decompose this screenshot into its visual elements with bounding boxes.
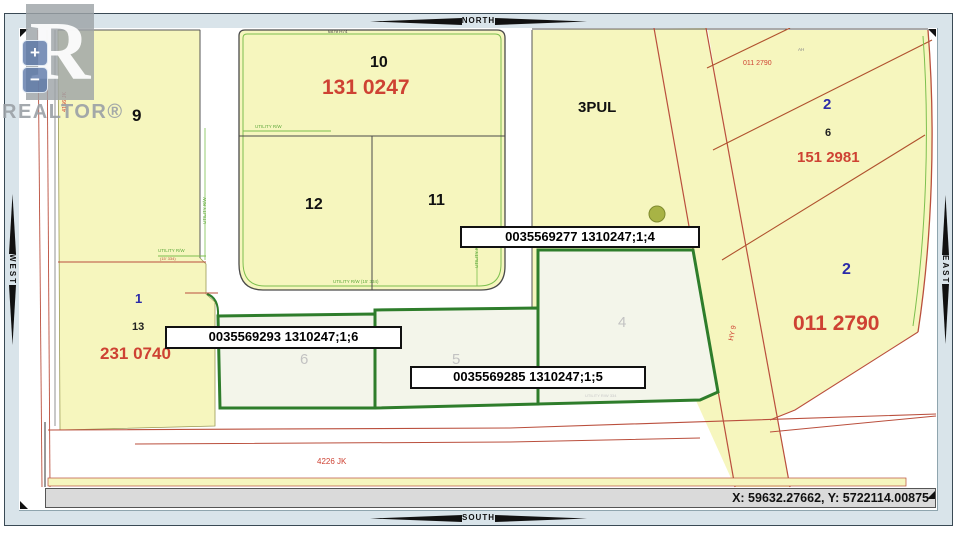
pan-arrow-top-left-icon[interactable]	[20, 29, 28, 37]
lot-12-label: 12	[305, 197, 323, 213]
annotation-ah: AH	[798, 48, 804, 53]
zoom-in-button[interactable]: +	[22, 40, 48, 66]
compass-west-label: WEST	[8, 254, 16, 285]
parcel-callout-1310247-1-6: 0035569293 1310247;1;6	[165, 326, 402, 349]
utility-row-label: UTILITY R/W (15' 334)	[333, 280, 379, 285]
sublot-6-label: 6	[300, 352, 308, 367]
east-arrow-down-icon	[941, 284, 950, 344]
east-arrow-up-icon	[941, 195, 950, 255]
compass-bar-west[interactable]: WEST	[5, 28, 20, 511]
south-arrow-right-icon	[495, 514, 587, 523]
road-4226jk-label: 4226 JK	[317, 458, 346, 466]
compass-east-label: EAST	[941, 255, 949, 284]
south-arrow-left-icon	[370, 514, 462, 523]
compass-bar-south[interactable]: SOUTH	[5, 510, 952, 525]
status-bar: X: 59632.27662, Y: 5722114.00875	[45, 488, 936, 508]
lot-11-label: 11	[428, 193, 445, 209]
parcel-9-1-region[interactable]	[58, 30, 215, 430]
compass-south-label: SOUTH	[462, 514, 495, 522]
pan-arrow-top-right-icon[interactable]	[928, 29, 936, 37]
map-viewer: NORTH SOUTH WEST EAST	[0, 0, 960, 540]
survey-monument-dot[interactable]	[649, 206, 665, 222]
utility-dim-label: (15' 334)	[160, 257, 176, 261]
viewer-frame: NORTH SOUTH WEST EAST	[4, 13, 953, 526]
utility-row-label: UTILITY R/W	[255, 125, 282, 130]
utility-row-faint-label: UTILITY R/W 334	[585, 394, 617, 398]
plan-231-0740-label: 231 0740	[100, 345, 171, 362]
west-arrow-up-icon	[8, 194, 17, 254]
compass-bar-north[interactable]: NORTH	[5, 14, 952, 29]
parcel-callout-1310247-1-4: 0035569277 1310247;1;4	[460, 226, 700, 248]
pan-arrow-bottom-left-icon[interactable]	[20, 501, 28, 509]
plan-011-2790-small-label: 011 2790	[743, 60, 772, 67]
plan-011-2790-label: 011 2790	[793, 313, 879, 334]
utility-row-label-vertical: UTILITY R/W	[203, 197, 208, 224]
west-arrow-down-icon	[8, 285, 17, 345]
annotation-6879: 6879 H74	[328, 30, 348, 35]
lot-13-label: 13	[132, 322, 144, 333]
north-arrow-right-icon	[495, 17, 587, 26]
road-lines-left	[38, 30, 55, 487]
map-canvas[interactable]: 9 1 13 231 0740 10 131 0247 12 11 3PUL 6…	[19, 28, 937, 510]
sublot-4-label: 4	[618, 315, 626, 330]
plan-131-0247-label: 131 0247	[322, 77, 410, 98]
compass-north-label: NORTH	[462, 17, 495, 25]
lot-6-right-label: 6	[825, 128, 831, 139]
block-1-label: 1	[135, 292, 142, 305]
north-arrow-left-icon	[370, 17, 462, 26]
sublot-5-label: 5	[452, 352, 460, 367]
compass-bar-east[interactable]: EAST	[937, 28, 952, 511]
zoom-out-button[interactable]: −	[22, 67, 48, 93]
lot-3pul-label: 3PUL	[578, 100, 616, 115]
road-4156jk-label: 4156 JK	[63, 92, 69, 112]
pan-arrow-bottom-right-icon[interactable]	[927, 491, 935, 499]
plan-151-2981-label: 151 2981	[797, 150, 860, 165]
block-2-lower-label: 2	[842, 262, 851, 278]
block-2-upper-label: 2	[823, 97, 831, 112]
parcel-callout-1310247-1-5: 0035569285 1310247;1;5	[410, 366, 646, 389]
cursor-coordinates: X: 59632.27662, Y: 5722114.00875	[732, 491, 929, 505]
lot-10-label: 10	[370, 55, 388, 71]
utility-row-label: UTILITY R/W	[158, 249, 185, 254]
lot-9-label: 9	[132, 107, 141, 124]
parcel-map-drawing	[19, 28, 937, 510]
